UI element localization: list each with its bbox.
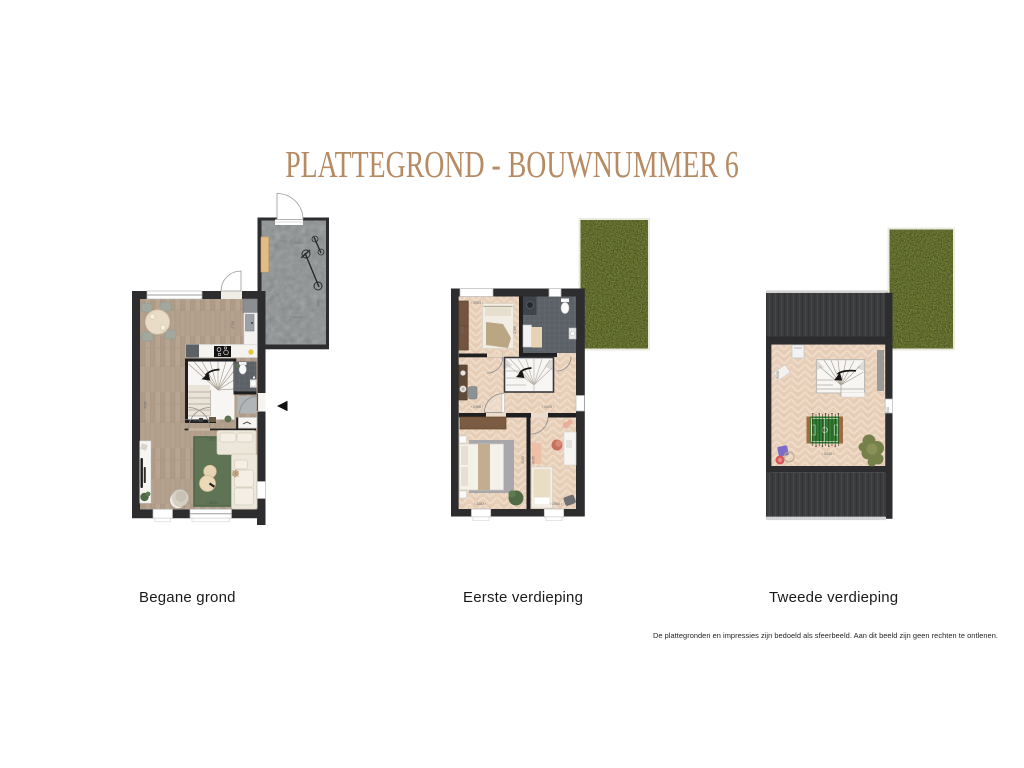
svg-text:3065: 3065 — [317, 299, 321, 307]
svg-text:4498: 4498 — [776, 371, 780, 379]
svg-text:‹ 1900 ›: ‹ 1900 › — [190, 419, 203, 423]
svg-text:‹ 2460 ›: ‹ 2460 › — [534, 348, 547, 352]
svg-text:‹ 4800 ›: ‹ 4800 › — [291, 241, 304, 245]
svg-text:‹ 2358 ›: ‹ 2358 › — [471, 405, 484, 409]
svg-text:‹ 3383 ›: ‹ 3383 › — [474, 502, 487, 506]
svg-text:4195: 4195 — [532, 456, 536, 464]
svg-text:4195: 4195 — [521, 456, 525, 464]
svg-text:‹ 4495 ›: ‹ 4495 › — [207, 501, 220, 505]
svg-text:‹ 5430 ›: ‹ 5430 › — [822, 452, 835, 456]
svg-text:2785: 2785 — [231, 321, 235, 329]
svg-text:4985: 4985 — [144, 401, 148, 409]
svg-text:‹ 2903 ›: ‹ 2903 › — [471, 301, 484, 305]
svg-text:940: 940 — [886, 407, 890, 413]
svg-text:‹ 2415 ›: ‹ 2415 › — [542, 405, 555, 409]
svg-text:‹ 5490 ›: ‹ 5490 › — [291, 316, 304, 320]
svg-text:2768: 2768 — [513, 326, 517, 334]
svg-text:‹ 2060 ›: ‹ 2060 › — [550, 502, 563, 506]
svg-text:4995: 4995 — [461, 326, 465, 334]
